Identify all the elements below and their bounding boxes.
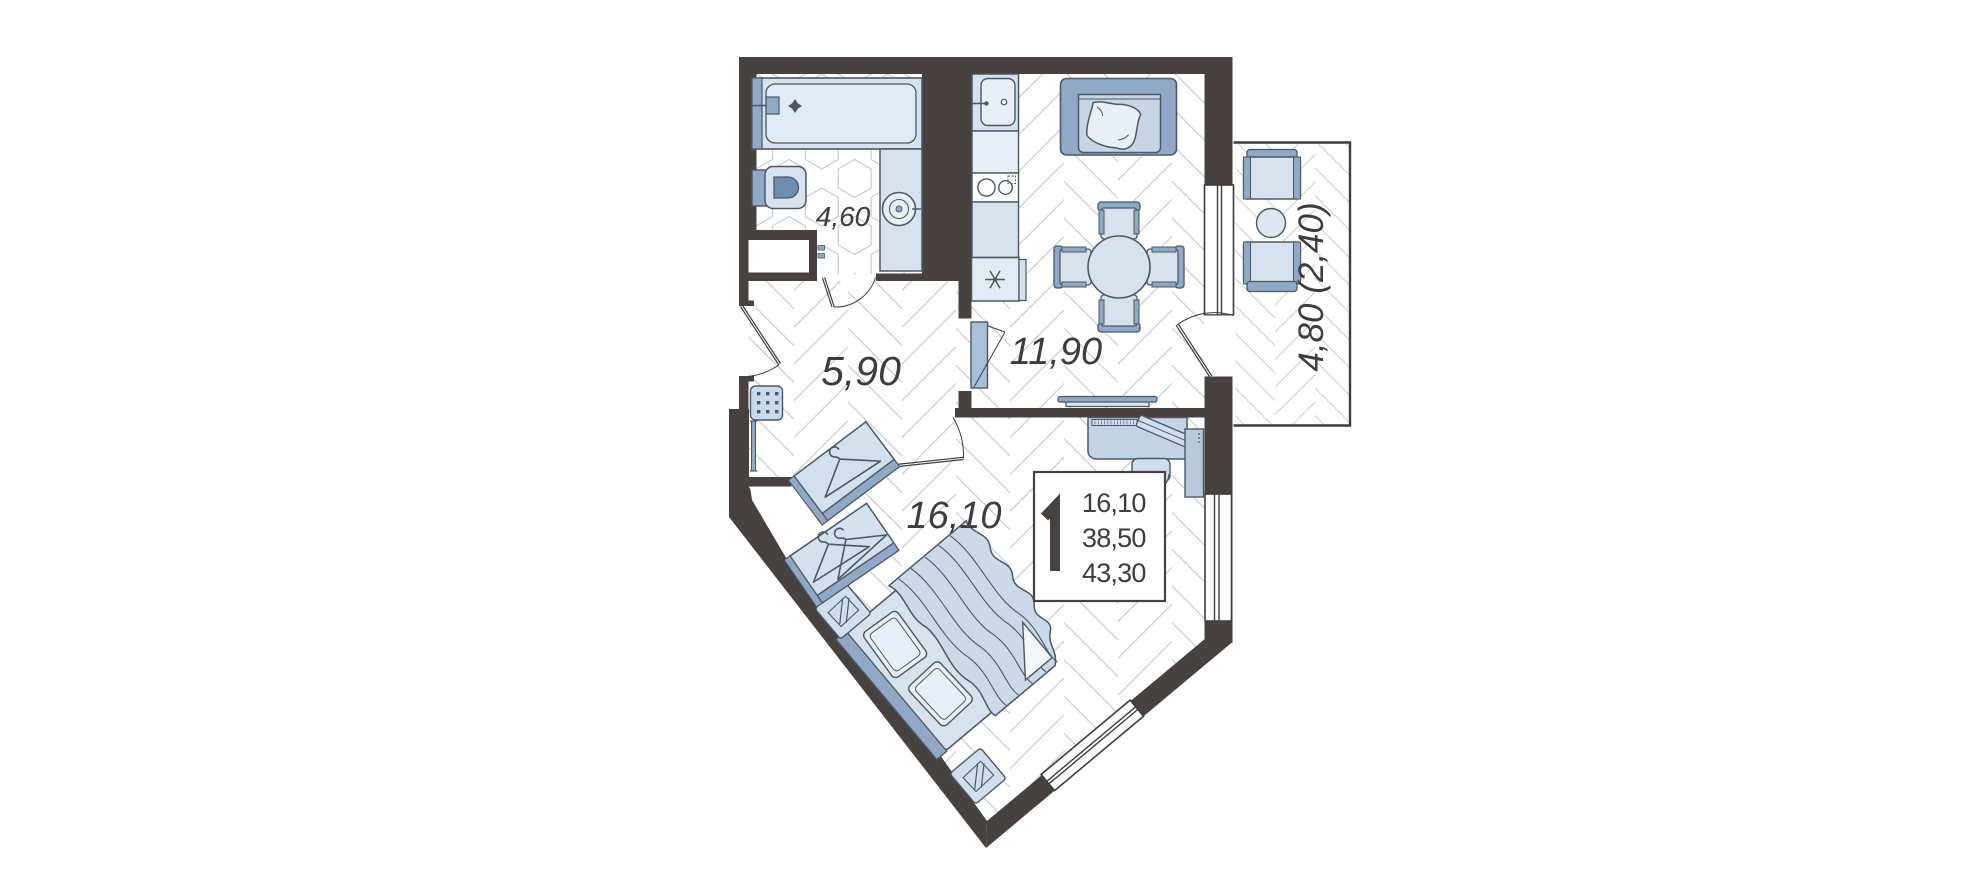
svg-text:16,10: 16,10 bbox=[1082, 488, 1146, 518]
svg-text:4,60: 4,60 bbox=[816, 201, 871, 232]
svg-text:38,50: 38,50 bbox=[1082, 523, 1146, 553]
svg-text:5,90: 5,90 bbox=[821, 348, 901, 394]
svg-text:4,80 (2,40): 4,80 (2,40) bbox=[1292, 202, 1331, 371]
svg-text:16,10: 16,10 bbox=[906, 495, 1001, 537]
svg-text:43,30: 43,30 bbox=[1082, 558, 1146, 588]
svg-text:11,90: 11,90 bbox=[1010, 331, 1102, 373]
